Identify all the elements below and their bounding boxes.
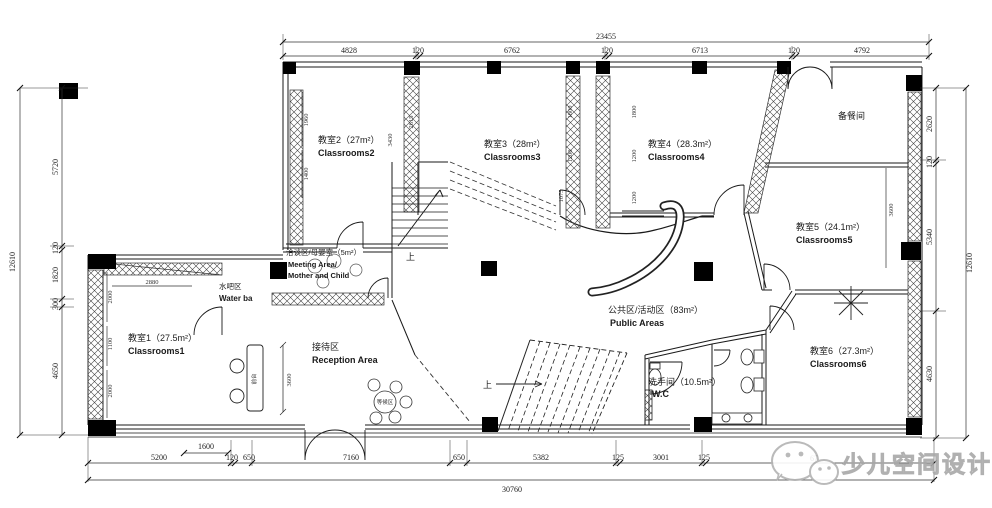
room-label-classroom2-en: Classrooms2 xyxy=(318,148,375,158)
reception-desk xyxy=(230,342,286,415)
dim-interior: 1200 xyxy=(567,150,574,163)
room-label-classroom1-en: Classrooms1 xyxy=(128,346,185,356)
dim-right-seg: 4630 xyxy=(925,366,934,382)
dim-right-seg: 5340 xyxy=(925,229,934,245)
skylight-star xyxy=(834,286,868,320)
ramp xyxy=(498,340,627,434)
dim-bottom-seg: 3001 xyxy=(653,453,669,462)
dim-left-total: 12610 xyxy=(8,252,17,272)
dim-left-seg: 1820 xyxy=(51,267,60,283)
dim-top-seg: 120 xyxy=(601,46,613,55)
dim-interior: 2000 xyxy=(107,385,114,398)
dim-bottom-seg: 120 xyxy=(226,453,238,462)
walls xyxy=(88,62,922,437)
dim-right-seg: 120 xyxy=(925,156,934,168)
dim-interior: 1800 xyxy=(631,106,638,119)
dim-top-seg: 4792 xyxy=(854,46,870,55)
dim-bottom-seg: 5382 xyxy=(533,453,549,462)
dim-interior: 1960 xyxy=(303,114,310,127)
room-label-classroom1-cn: 教室1（27.5m²） xyxy=(128,332,197,343)
room-label-classroom2-cn: 教室2（27m²） xyxy=(318,134,380,145)
room-label-meeting-en2: Mother and Child xyxy=(288,271,350,280)
dim-interior: 2000 xyxy=(107,291,114,304)
dim-left-seg: 300 xyxy=(51,298,60,310)
dim-bottom-seg: 650 xyxy=(243,453,255,462)
dimension-lines xyxy=(20,34,966,482)
dim-left-seg: 4650 xyxy=(51,363,60,379)
dim-interior: 1800 xyxy=(567,106,574,119)
small-staircase xyxy=(392,188,448,246)
room-label-classroom5-en: Classrooms5 xyxy=(796,235,853,245)
dim-bottom-seg: 5200 xyxy=(151,453,167,462)
dim-interior: 3430 xyxy=(387,134,394,147)
room-label-classroom4-cn: 教室4（28.3m²） xyxy=(648,138,717,149)
room-label-classroom5-cn: 教室5（24.1m²） xyxy=(796,221,865,232)
watermark: 少儿空间设计 xyxy=(772,442,992,484)
dim-bottom-total: 30760 xyxy=(502,485,522,494)
dim-entrance: 1600 xyxy=(198,442,214,451)
dim-interior: 1200 xyxy=(631,150,638,163)
dim-interior: 1100 xyxy=(107,338,114,351)
room-label-reception-cn: 接待区 xyxy=(312,341,339,352)
room-label-classroom6-cn: 教室6（27.3m²） xyxy=(810,345,879,356)
dim-top-total: 23455 xyxy=(596,32,616,41)
dim-interior: 1200 xyxy=(631,192,638,205)
room-label-wc-en: W.C xyxy=(652,389,669,399)
dim-bottom-seg: 125 xyxy=(612,453,624,462)
reception-divider-dashed xyxy=(415,355,470,422)
dim-interior: 1400 xyxy=(303,168,310,181)
dim-top-seg: 6713 xyxy=(692,46,708,55)
dim-top-seg: 6762 xyxy=(504,46,520,55)
dim-bottom-seg: 125 xyxy=(698,453,710,462)
room-label-meeting-cn: 洽谈区/母婴室（5m²） xyxy=(286,247,361,257)
dim-top-seg: 120 xyxy=(788,46,800,55)
ramp-direction-arrow xyxy=(496,381,542,387)
room-label-pantry-cn: 备餐间 xyxy=(838,110,865,121)
dim-top-seg: 4828 xyxy=(341,46,357,55)
dim-left-seg: 5720 xyxy=(51,159,60,175)
dim-bottom-seg: 7160 xyxy=(343,453,359,462)
stair-void-dashed xyxy=(450,162,556,230)
dim-interior: 2615 xyxy=(408,116,415,129)
room-label-wc-cn: 洗手间（10.5m²） xyxy=(648,376,721,387)
up-arrow-label-stair: 上 xyxy=(406,252,415,262)
dim-bottom-seg: 650 xyxy=(453,453,465,462)
dim-right-total: 12610 xyxy=(965,253,974,273)
dim-interior: 3600 xyxy=(286,374,293,387)
dim-top-seg: 120 xyxy=(412,46,424,55)
wechat-logo-icon xyxy=(772,442,838,484)
floor-plan-svg: 23455 4828 120 6762 120 6713 120 4792 30… xyxy=(0,0,992,508)
desk-label: 前台 xyxy=(250,373,258,385)
dim-interior: 2880 xyxy=(146,279,159,286)
dim-left-seg: 120 xyxy=(51,242,60,254)
room-label-classroom3-cn: 教室3（28m²） xyxy=(484,138,546,149)
room-label-reception-en: Reception Area xyxy=(312,355,379,365)
watermark-text: 少儿空间设计 xyxy=(841,451,992,477)
room-label-public-en: Public Areas xyxy=(610,318,664,328)
room-label-classroom4-en: Classrooms4 xyxy=(648,152,705,162)
dim-interior: 3600 xyxy=(888,204,895,217)
room-label-waterbar-cn: 水吧区 xyxy=(219,281,242,291)
floor-plan-page: 23455 4828 120 6762 120 6713 120 4792 30… xyxy=(0,0,992,508)
dim-interior: 1075 xyxy=(558,190,565,203)
room-label-public-cn: 公共区/活动区（83m²） xyxy=(608,304,703,315)
waiting-area-label: 等候区 xyxy=(377,398,394,406)
dim-right-seg: 2620 xyxy=(925,116,934,132)
room-label-meeting-en1: Meeting Area/ xyxy=(288,260,338,269)
up-arrow-label-ramp: 上 xyxy=(483,380,492,390)
room-label-classroom3-en: Classrooms3 xyxy=(484,152,541,162)
room-label-waterbar-en: Water ba xyxy=(219,294,253,303)
room-label-classroom6-en: Classrooms6 xyxy=(810,359,867,369)
